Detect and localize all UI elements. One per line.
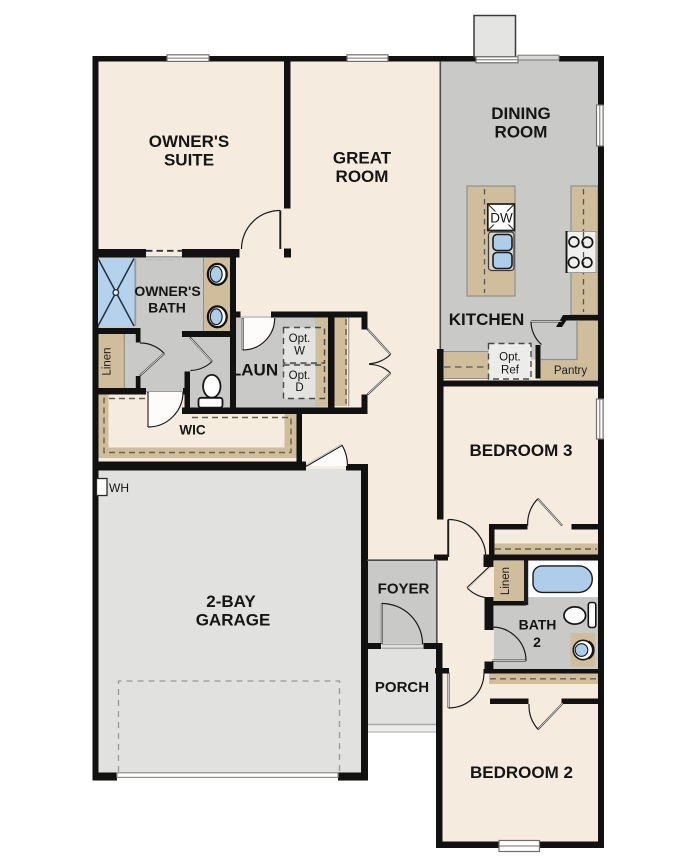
svg-text:KITCHEN: KITCHEN (449, 310, 525, 329)
svg-text:Opt.: Opt. (289, 370, 311, 382)
svg-text:ROOM: ROOM (495, 123, 548, 142)
svg-text:DW: DW (490, 211, 513, 226)
svg-text:DINING: DINING (491, 104, 551, 123)
svg-text:OWNER'S: OWNER'S (134, 283, 200, 299)
svg-text:BATH: BATH (148, 300, 186, 316)
svg-text:GREAT: GREAT (333, 149, 392, 168)
svg-text:W: W (294, 346, 305, 358)
svg-text:2-BAY: 2-BAY (206, 592, 256, 611)
svg-text:BEDROOM 3: BEDROOM 3 (470, 441, 573, 460)
svg-text:WH: WH (109, 481, 129, 495)
svg-text:Ref: Ref (501, 365, 520, 377)
svg-text:LAUN: LAUN (231, 361, 278, 380)
svg-text:D: D (295, 382, 303, 394)
svg-text:WIC: WIC (179, 423, 205, 438)
svg-text:BATH: BATH (519, 617, 557, 633)
svg-text:ROOM: ROOM (336, 167, 389, 186)
svg-text:Linen: Linen (500, 567, 512, 595)
svg-text:Linen: Linen (102, 347, 114, 375)
svg-text:Opt.: Opt. (289, 333, 311, 345)
svg-text:Pantry: Pantry (554, 365, 587, 377)
svg-text:FOYER: FOYER (378, 581, 430, 598)
svg-text:OWNER'S: OWNER'S (149, 132, 230, 151)
svg-text:SUITE: SUITE (164, 151, 214, 170)
svg-text:Opt.: Opt. (499, 352, 521, 364)
svg-text:GARAGE: GARAGE (196, 611, 271, 630)
svg-text:BEDROOM 2: BEDROOM 2 (470, 763, 573, 782)
svg-text:2: 2 (533, 634, 541, 650)
svg-text:PORCH: PORCH (375, 679, 429, 696)
